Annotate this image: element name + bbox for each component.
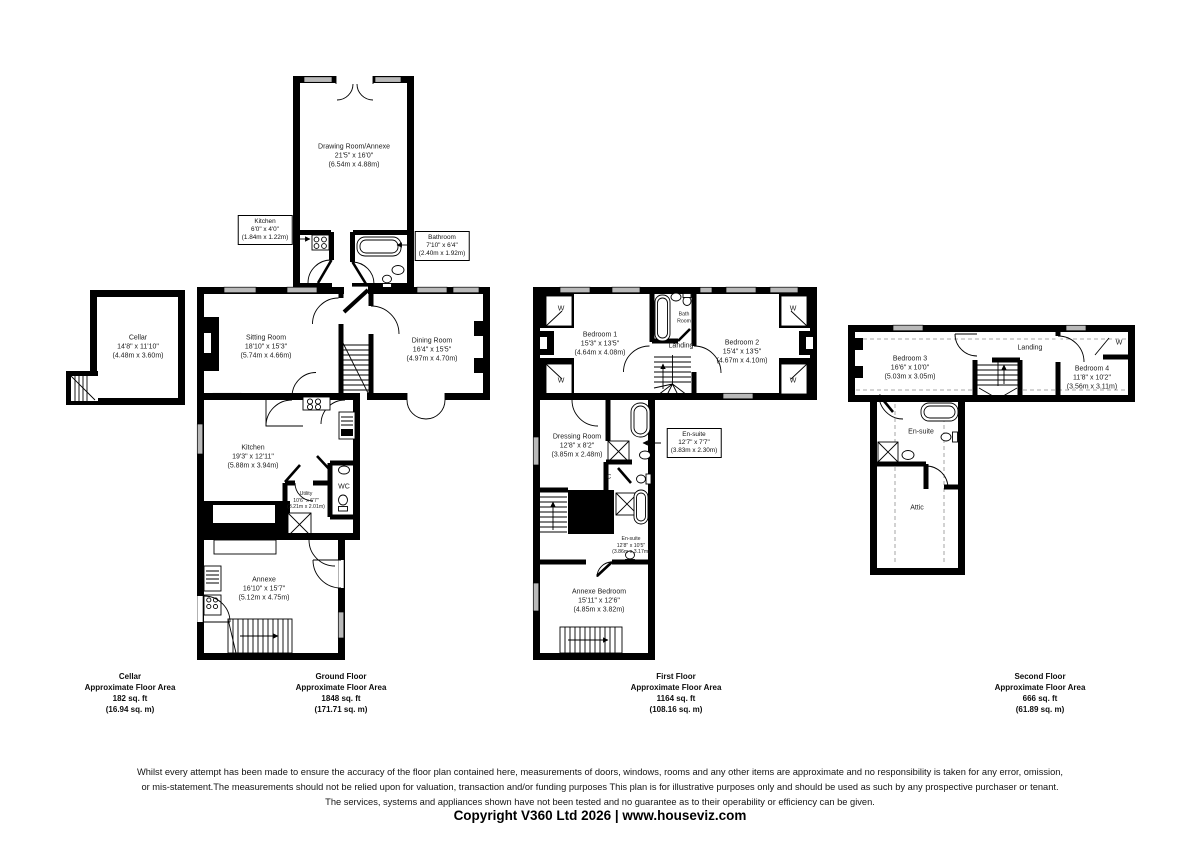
callout-ensuite: En-suite 12'7" x 7'7" (3.83m x 2.30m) (667, 428, 722, 458)
room-label-dining-room: Dining Room 16'4" x 15'5" (4.97m x 4.70m… (407, 337, 458, 364)
room-label-bath-room: Bath Room (672, 311, 696, 324)
room-label-landing-first: Landing (669, 342, 694, 351)
room-label-cupboard: C (607, 474, 611, 482)
wardrobe-label-1: W (558, 305, 565, 314)
room-label-ensuite3: En-suite (908, 428, 934, 437)
wardrobe-label-5: W (1116, 339, 1123, 348)
disclaimer-line-2: or mis-statement.The measurements should… (0, 780, 1200, 795)
callout-kitchen-small: Kitchen 6'0" x 4'0" (1.84m x 1.22m) (238, 215, 293, 245)
wardrobe-label-3: W (790, 305, 797, 314)
floorplan-drawing (0, 0, 1200, 848)
room-label-sitting-room: Sitting Room 18'10" x 15'3" (5.74m x 4.6… (241, 334, 292, 361)
room-label-landing-second: Landing (1018, 344, 1043, 353)
room-label-bedroom2: Bedroom 2 15'4" x 13'5" (4.67m x 4.10m) (717, 339, 768, 366)
floor-area-first: First Floor Approximate Floor Area 1164 … (631, 671, 722, 715)
room-label-bedroom1: Bedroom 1 15'3" x 13'5" (4.64m x 4.08m) (575, 331, 626, 358)
room-label-annexe-bedroom: Annexe Bedroom 15'11" x 12'6" (4.85m x 3… (572, 588, 626, 615)
room-label-cellar: Cellar 14'8" x 11'10" (4.48m x 3.60m) (113, 334, 164, 361)
wardrobe-label-4: W (790, 377, 797, 386)
room-label-attic: Attic (910, 504, 924, 513)
floor-area-second: Second Floor Approximate Floor Area 666 … (995, 671, 1086, 715)
room-label-annexe: Annexe 16'10" x 15'7" (5.12m x 4.75m) (239, 576, 290, 603)
room-label-dressing-room: Dressing Room 12'8" x 8'2" (3.85m x 2.48… (552, 433, 603, 460)
wardrobe-label-2: W (558, 377, 565, 386)
room-label-bedroom4: Bedroom 4 11'8" x 10'2" (3.56m x 3.11m) (1067, 365, 1117, 392)
ground-floor-plan (66, 76, 487, 657)
room-label-ensuite2: En-suite 12'8" x 10'5" (3.86m x 3.17m) (612, 536, 650, 556)
disclaimer-line-1: Whilst every attempt has been made to en… (0, 765, 1200, 780)
copyright-text: Copyright V360 Ltd 2026 | www.houseviz.c… (0, 808, 1200, 823)
room-label-wc: WC (338, 483, 350, 492)
floor-area-cellar: Cellar Approximate Floor Area 182 sq. ft… (85, 671, 176, 715)
disclaimer-text: Whilst every attempt has been made to en… (0, 765, 1200, 810)
room-label-drawing-room: Drawing Room/Annexe 21'5" x 16'0" (6.54m… (318, 143, 390, 170)
callout-bathroom: Bathroom 7'10" x 6'4" (2.40m x 1.92m) (415, 231, 470, 261)
floor-area-ground: Ground Floor Approximate Floor Area 1848… (296, 671, 387, 715)
room-label-kitchen: Kitchen 19'3" x 12'11" (5.88m x 3.94m) (228, 444, 279, 471)
floorplan-page: Drawing Room/Annexe 21'5" x 16'0" (6.54m… (0, 0, 1200, 848)
room-label-utility: Utility 10'6" x 6'7" (3.21m x 2.01m) (287, 491, 325, 511)
room-label-bedroom3: Bedroom 3 16'6" x 10'0" (5.03m x 3.05m) (885, 355, 936, 382)
